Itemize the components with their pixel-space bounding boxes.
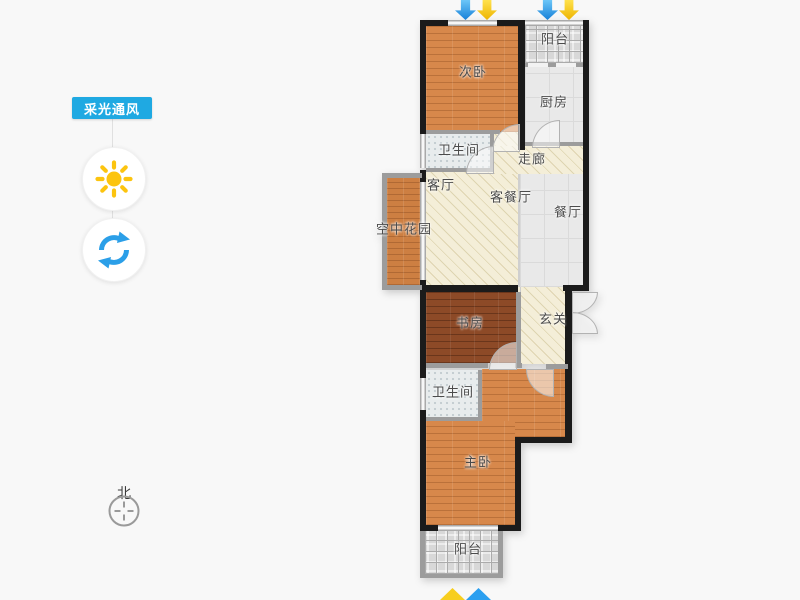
- room-label-corridor: 走廊: [518, 149, 546, 168]
- balcony-wall: [498, 531, 503, 576]
- wall: [420, 290, 426, 531]
- room-label-sky-garden: 空中花园: [376, 219, 432, 238]
- window: [525, 20, 583, 26]
- wall: [583, 20, 589, 291]
- room-label-balcony-top: 阳台: [541, 29, 569, 48]
- partition-wall: [382, 285, 422, 290]
- door-arc-entrance: [572, 312, 598, 334]
- wall: [420, 20, 426, 134]
- room-label-kitchen: 厨房: [540, 92, 568, 111]
- wall: [515, 437, 521, 531]
- wall: [420, 285, 518, 292]
- floor-plan: 阳台 次卧 厨房 卫生间 走廊 客厅 客餐厅 餐厅 空中花园 书房 玄关 卫生间…: [0, 0, 800, 600]
- balcony-wall: [420, 574, 503, 578]
- door-arc-entrance: [572, 292, 598, 314]
- room-label-bedroom2: 次卧: [459, 62, 487, 81]
- room-label-balcony-bottom: 阳台: [454, 539, 482, 558]
- window: [556, 63, 576, 67]
- window: [438, 525, 498, 531]
- room-label-study: 书房: [456, 313, 484, 332]
- wall: [515, 437, 572, 443]
- room-label-living-dining: 客餐厅: [490, 187, 532, 206]
- partition-wall: [382, 173, 422, 178]
- room-label-bathroom2: 卫生间: [432, 382, 474, 401]
- room-label-master: 主卧: [464, 452, 492, 471]
- partition-wall: [478, 370, 482, 421]
- room-label-entry: 玄关: [539, 309, 567, 328]
- window: [448, 20, 497, 26]
- partition-wall: [426, 363, 488, 368]
- room-bedroom-master-floor: [426, 421, 515, 525]
- partition-wall: [426, 130, 500, 134]
- balcony-wall: [420, 531, 425, 576]
- window: [528, 63, 548, 67]
- window: [420, 378, 426, 410]
- room-label-living: 客厅: [427, 175, 455, 194]
- partition-wall: [426, 417, 482, 421]
- room-label-bathroom1: 卫生间: [438, 140, 480, 159]
- room-label-dining: 餐厅: [554, 202, 582, 221]
- window: [420, 134, 426, 168]
